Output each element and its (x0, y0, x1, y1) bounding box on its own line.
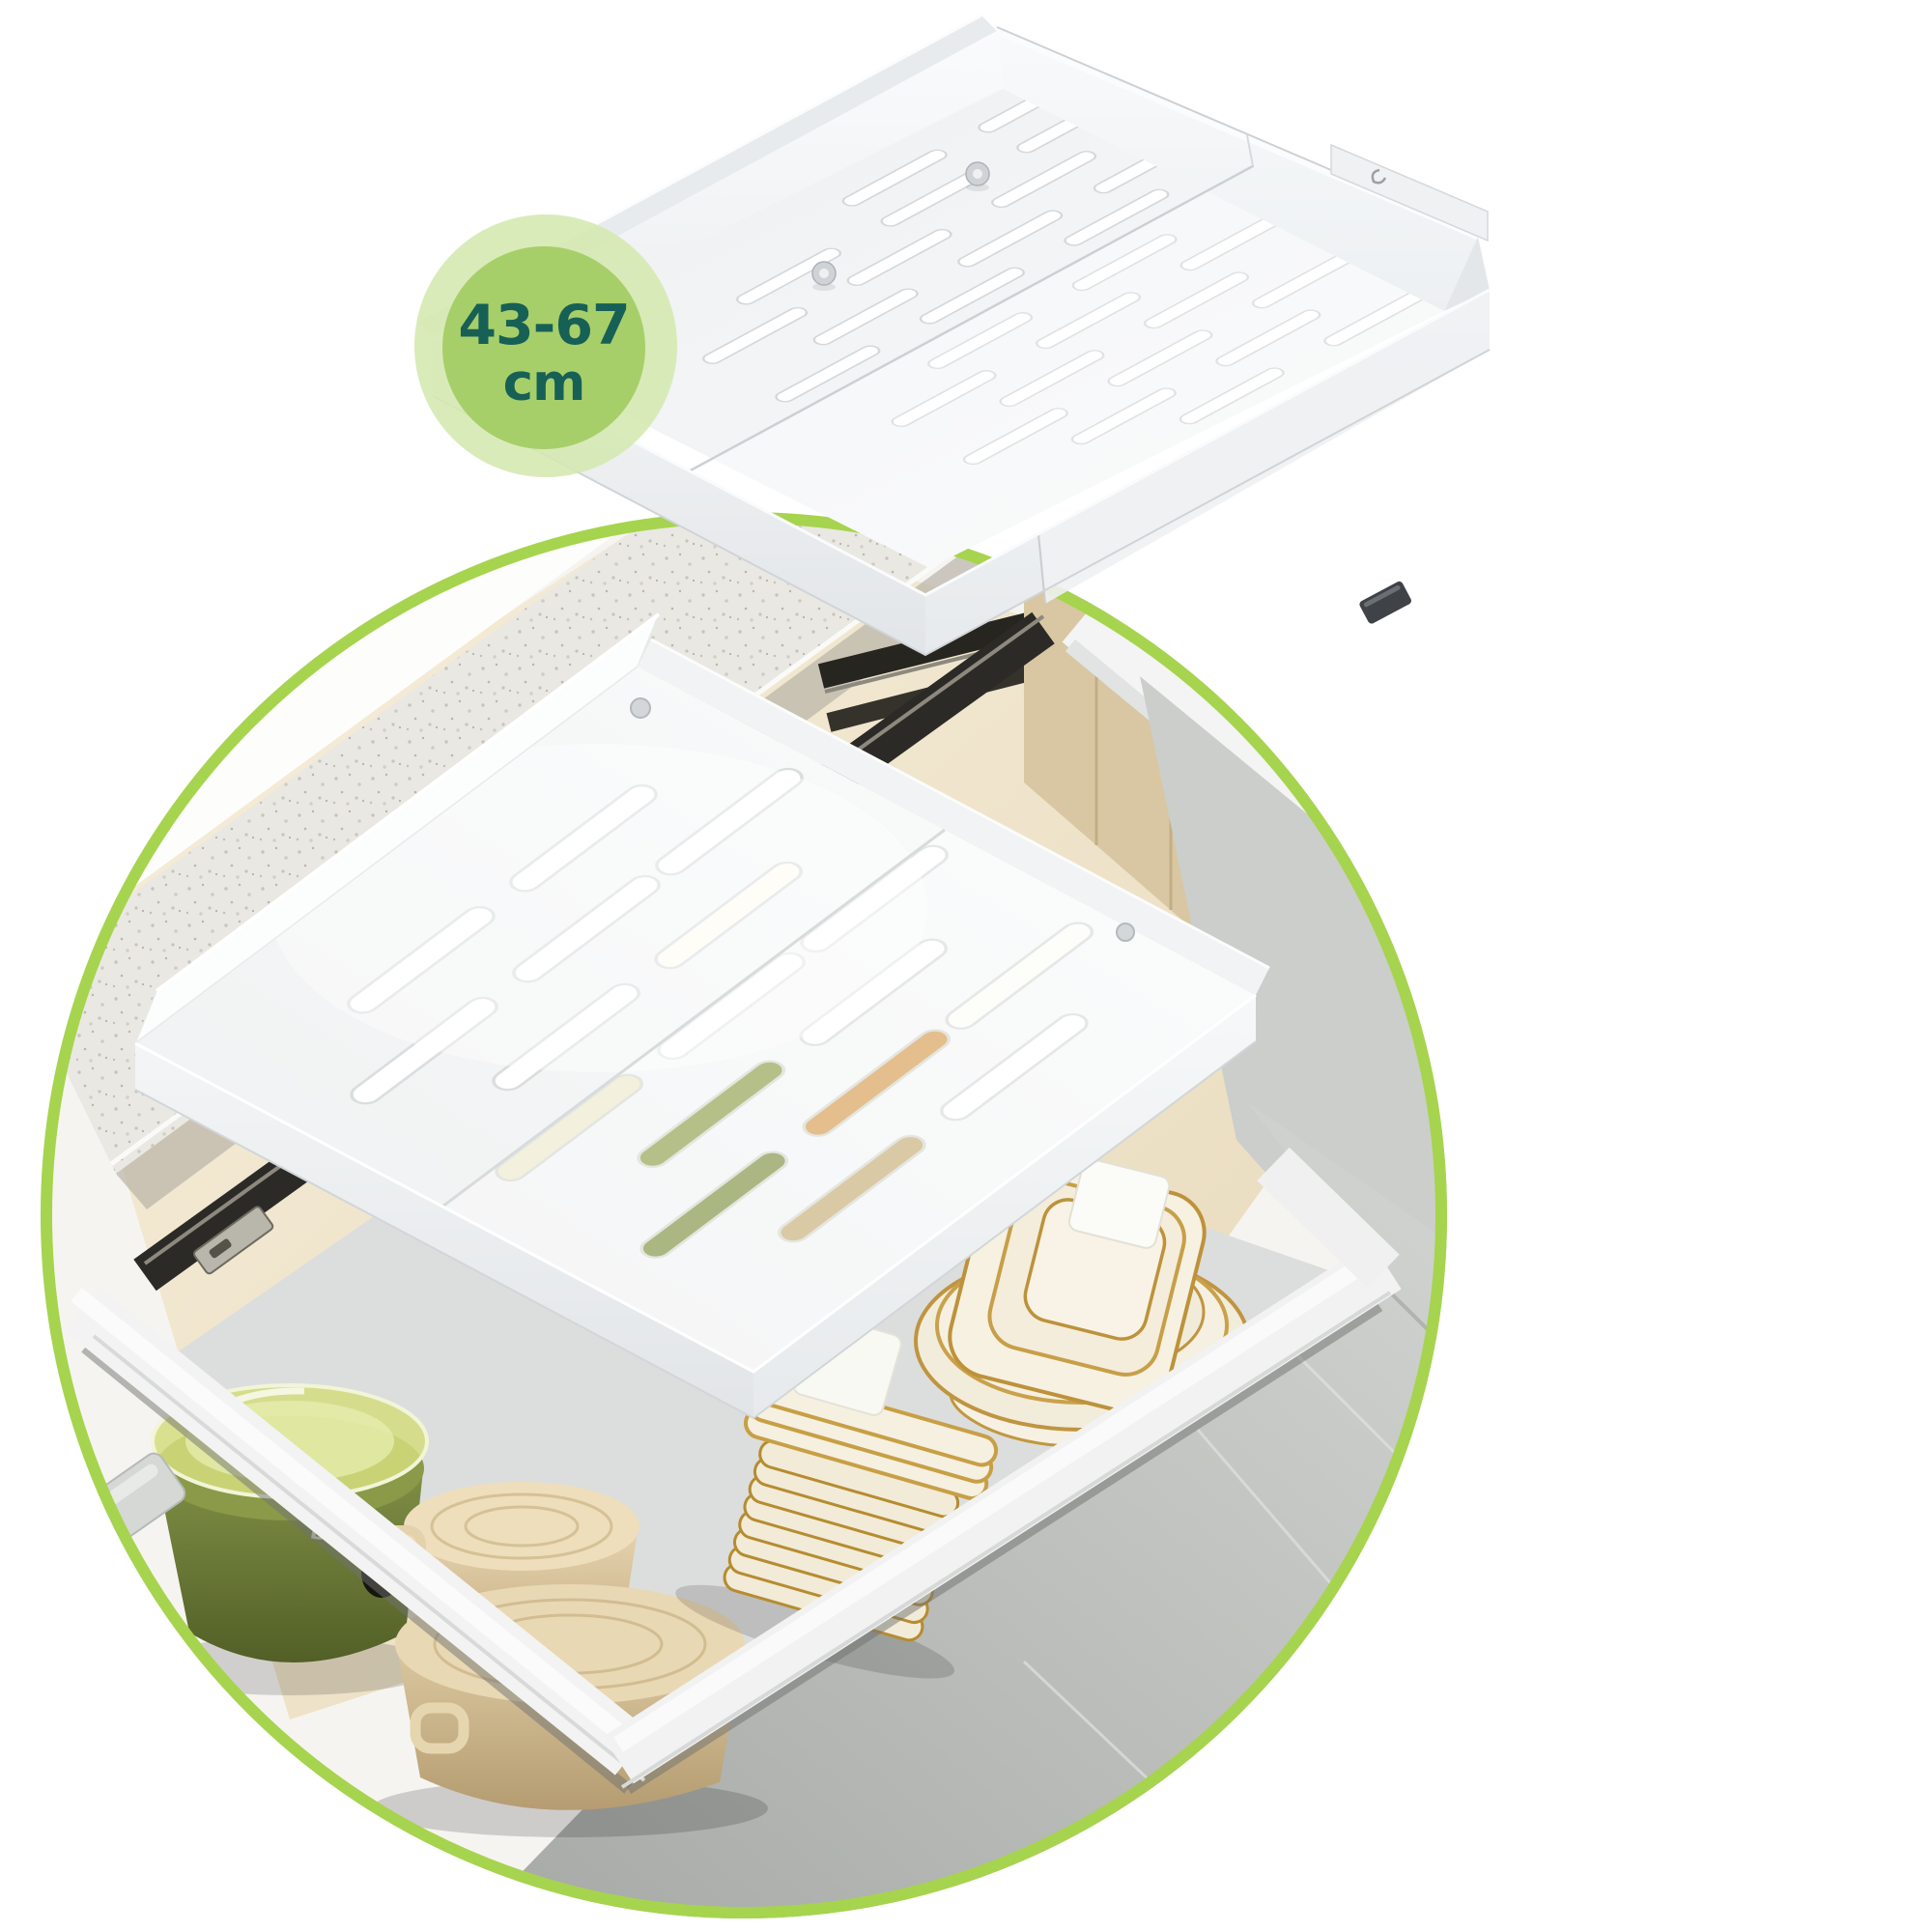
inner-tray-screw (1117, 923, 1134, 941)
scene: BRA (0, 0, 1932, 1932)
tray-foot (1358, 581, 1412, 625)
badge-text-line1: 43-67 (458, 294, 629, 357)
tray-screw (966, 162, 989, 191)
inner-tray-screw (631, 698, 650, 718)
tray-screw (812, 262, 836, 291)
badge-text-line2: cm (503, 354, 585, 412)
product-image: BRA (0, 0, 1932, 1932)
size-badge: 43-67 cm (414, 214, 677, 477)
